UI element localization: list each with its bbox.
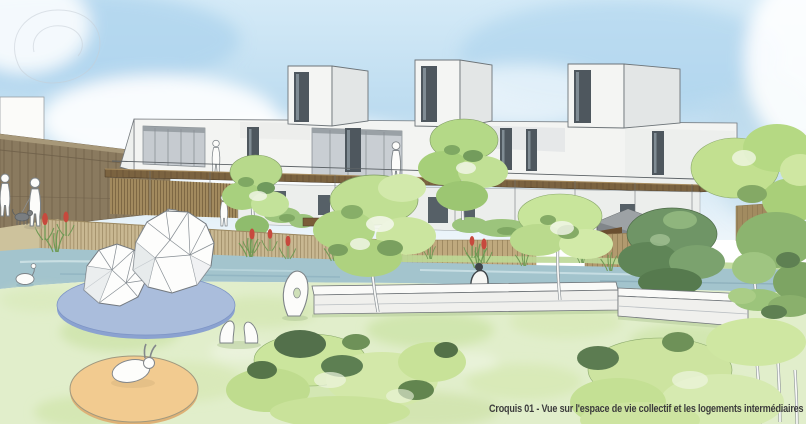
tower-1 bbox=[288, 66, 368, 126]
tower-2 bbox=[415, 60, 492, 127]
illustration-canvas bbox=[0, 0, 806, 424]
roof-towers bbox=[288, 60, 680, 128]
architectural-sketch: Croquis 01 - Vue sur l'espace de vie col… bbox=[0, 0, 806, 424]
caption: Croquis 01 - Vue sur l'espace de vie col… bbox=[489, 403, 803, 415]
tower-3 bbox=[568, 64, 680, 128]
